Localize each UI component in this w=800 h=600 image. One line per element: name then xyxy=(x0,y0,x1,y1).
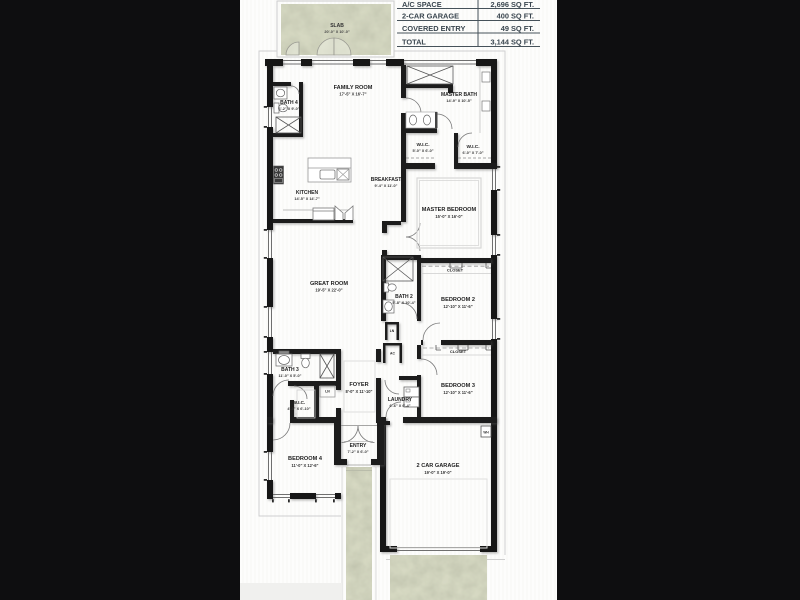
svg-text:400 SQ FT.: 400 SQ FT. xyxy=(497,12,534,21)
svg-text:MASTER BEDROOM: MASTER BEDROOM xyxy=(422,207,477,213)
svg-text:TOTAL: TOTAL xyxy=(402,38,426,47)
svg-text:5'-8" X 10'-4": 5'-8" X 10'-4" xyxy=(392,301,415,305)
svg-text:49 SQ FT.: 49 SQ FT. xyxy=(501,24,534,33)
svg-text:BATH 3: BATH 3 xyxy=(281,367,299,373)
svg-text:WH: WH xyxy=(483,431,489,435)
svg-text:LN: LN xyxy=(390,329,395,333)
svg-text:5'-0" X 6'-0": 5'-0" X 6'-0" xyxy=(412,149,433,153)
svg-text:2-CAR GARAGE: 2-CAR GARAGE xyxy=(402,12,459,21)
svg-text:BEDROOM 2: BEDROOM 2 xyxy=(441,297,475,303)
svg-text:SLAB: SLAB xyxy=(330,23,344,29)
svg-text:3,144 SQ FT.: 3,144 SQ FT. xyxy=(490,38,534,47)
svg-text:MASTER BATH: MASTER BATH xyxy=(441,92,477,98)
svg-text:COVERED ENTRY: COVERED ENTRY xyxy=(402,24,465,33)
svg-text:4'-0" X 6'-10": 4'-0" X 6'-10" xyxy=(287,407,310,411)
svg-text:BREAKFAST: BREAKFAST xyxy=(371,177,402,183)
svg-text:BATH 2: BATH 2 xyxy=(395,294,413,300)
svg-text:W.I.C.: W.I.C. xyxy=(466,144,479,150)
svg-text:KITCHEN: KITCHEN xyxy=(296,190,319,196)
svg-text:19'-5" X 22'-0": 19'-5" X 22'-0" xyxy=(315,288,342,293)
svg-text:LN: LN xyxy=(325,390,330,394)
svg-text:12'-10" X 11'-6": 12'-10" X 11'-6" xyxy=(443,304,472,309)
svg-text:7'-2" X 6'-0": 7'-2" X 6'-0" xyxy=(347,450,368,454)
svg-text:LAUNDRY: LAUNDRY xyxy=(388,397,413,403)
svg-text:14'-5" X 14'-7": 14'-5" X 14'-7" xyxy=(294,197,319,201)
svg-text:6'-6" X 6'-4": 6'-6" X 6'-4" xyxy=(389,404,410,408)
svg-text:6'-2" X 9'-0": 6'-2" X 9'-0" xyxy=(278,107,299,111)
svg-text:20'-0" X 10'-0": 20'-0" X 10'-0" xyxy=(324,30,349,34)
svg-text:FOYER: FOYER xyxy=(349,382,368,388)
svg-text:FAMILY ROOM: FAMILY ROOM xyxy=(334,85,373,91)
svg-text:BEDROOM 4: BEDROOM 4 xyxy=(288,456,323,462)
svg-text:GREAT ROOM: GREAT ROOM xyxy=(310,281,348,287)
svg-text:11'-0" X 5'-0": 11'-0" X 5'-0" xyxy=(279,374,302,378)
svg-text:14'-9" X 10'-5": 14'-9" X 10'-5" xyxy=(446,99,471,103)
svg-text:15'-0" X 16'-0": 15'-0" X 16'-0" xyxy=(435,214,462,219)
svg-text:2 CAR GARAGE: 2 CAR GARAGE xyxy=(417,463,460,469)
svg-text:6'-0" X 7'-0": 6'-0" X 7'-0" xyxy=(462,151,483,155)
svg-text:12'-10" X 11'-6": 12'-10" X 11'-6" xyxy=(443,390,472,395)
svg-text:17'-5" X 16'-7": 17'-5" X 16'-7" xyxy=(339,92,366,97)
svg-text:W.I.C.: W.I.C. xyxy=(416,142,429,148)
svg-text:8'-0" X 11'-10": 8'-0" X 11'-10" xyxy=(346,389,373,394)
svg-text:W.I.C.: W.I.C. xyxy=(293,400,306,405)
svg-text:CLOSET: CLOSET xyxy=(447,268,464,273)
svg-text:CLOSET: CLOSET xyxy=(450,349,467,354)
svg-text:ENTRY: ENTRY xyxy=(350,443,367,449)
svg-text:9'-4" X 11'-0": 9'-4" X 11'-0" xyxy=(375,184,398,188)
svg-text:BEDROOM 3: BEDROOM 3 xyxy=(441,383,475,389)
svg-text:2,696 SQ FT.: 2,696 SQ FT. xyxy=(490,0,534,9)
svg-text:A/C SPACE: A/C SPACE xyxy=(402,0,442,9)
svg-text:AC: AC xyxy=(390,352,395,356)
svg-text:19'-0" X 19'-0": 19'-0" X 19'-0" xyxy=(424,470,451,475)
svg-text:11'-0" X 12'-6": 11'-0" X 12'-6" xyxy=(292,463,319,468)
svg-text:BATH 4: BATH 4 xyxy=(280,100,298,106)
